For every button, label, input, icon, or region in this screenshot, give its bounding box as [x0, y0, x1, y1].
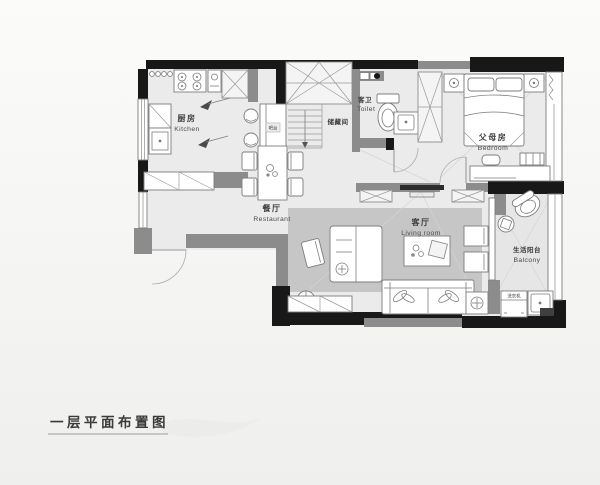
dining-chair — [288, 178, 303, 196]
side-table — [466, 292, 488, 314]
window-left-lower — [139, 192, 147, 228]
toilet-label-zh: 客卫 — [357, 95, 372, 104]
floor-plan: 吧台 — [0, 0, 600, 485]
storage-label-zh: 储藏间 — [327, 117, 349, 126]
armchair — [464, 252, 488, 272]
tv-cabinet — [452, 190, 484, 202]
toilet-sink — [394, 112, 418, 134]
dining-label-en: Restaurant — [253, 216, 290, 223]
coffee-table — [404, 236, 450, 266]
title-block: 一层平面布置图 — [48, 414, 262, 437]
watermark-flourish — [160, 417, 262, 437]
living-label-zh: 客厅 — [411, 217, 431, 227]
balcony-table — [498, 216, 514, 232]
window-bedroom-right — [546, 72, 562, 181]
kitchen-lower-cabinet — [144, 172, 214, 190]
low-cabinet — [288, 296, 352, 312]
kitchen-label-en: Kitchen — [174, 126, 199, 133]
stove — [174, 70, 206, 92]
balcony-label-zh: 生活阳台 — [513, 245, 541, 254]
toilet-label-en: Toilet — [357, 106, 375, 113]
dresser — [520, 153, 544, 165]
kitchen-appliance — [208, 70, 221, 92]
bar-label: 吧台 — [269, 125, 278, 132]
window-balcony-right — [548, 194, 562, 300]
bedroom-label-zh: 父母房 — [478, 132, 508, 142]
page-title: 一层平面布置图 — [50, 414, 169, 430]
bedroom-label-en: Bedroom — [478, 145, 508, 152]
armchair — [464, 226, 488, 246]
dining-chair — [288, 152, 303, 170]
dining-chair — [242, 178, 257, 196]
refrigerator-cabinet — [222, 70, 248, 98]
floor-drain-tag — [540, 308, 553, 316]
wardrobe — [418, 72, 442, 142]
window-balcony-door — [489, 198, 495, 280]
dining-chair — [242, 152, 257, 170]
nightstand-left — [444, 74, 464, 92]
chaise-lounge — [330, 226, 382, 282]
tv-cabinet — [360, 190, 392, 202]
kitchen-sink-unit — [149, 104, 171, 154]
washing-machine: 洗衣机 — [501, 291, 527, 317]
kitchen-label-zh: 厨房 — [178, 113, 197, 123]
dining-label-zh: 餐厅 — [262, 203, 282, 213]
nightstand-right — [524, 74, 544, 92]
entry-door — [152, 250, 186, 284]
window-left-upper — [138, 99, 148, 160]
sofa — [382, 280, 474, 314]
tv-screen — [400, 185, 444, 190]
balcony-label-en: Balcony — [514, 257, 541, 264]
living-label-en: Living room — [401, 230, 441, 237]
washer-label: 洗衣机 — [507, 293, 521, 300]
